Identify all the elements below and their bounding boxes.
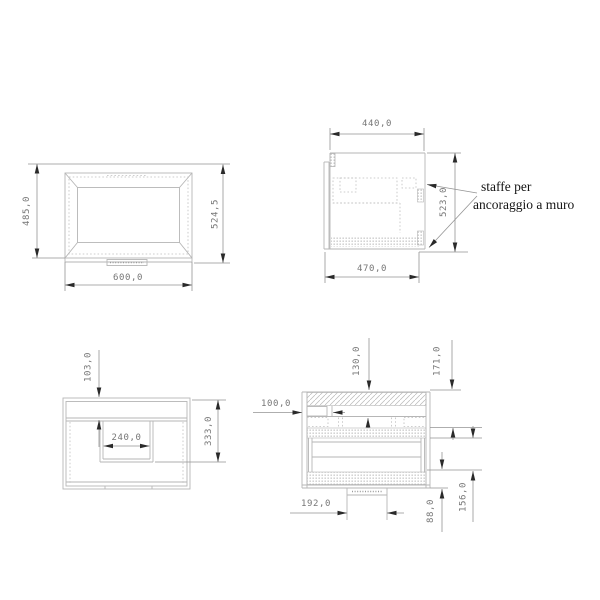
leader-line-bottom: [429, 196, 477, 248]
bottom-shelf-hatch: [307, 472, 426, 485]
dim-side-height: 523,0: [439, 187, 449, 217]
dim-bottom-height: 156,0: [459, 482, 469, 512]
dim-height-to-recess: 333,0: [204, 416, 214, 446]
cabinet-front-geometry: [63, 398, 190, 489]
basin-front-view: 485,0 524,5 600,0: [22, 164, 230, 291]
note-staffe-line1: staffe per: [481, 179, 532, 194]
side-geometry: [324, 153, 425, 249]
side-view: 440,0 523,0 470,0 staffe per ancoraggio …: [324, 119, 574, 283]
countertop-hatch: [307, 393, 426, 406]
cabinet-section-view: 130,0 171,0 100,0 156,0 88,0 192,0: [253, 338, 482, 532]
cabinet-front-view: 103,0 240,0 333,0: [63, 350, 226, 489]
dim-recess-width: 240,0: [111, 433, 141, 443]
leader-line-top: [427, 185, 477, 194]
dim-height-overall: 524,5: [211, 199, 221, 229]
dim-bracket-inset: 100,0: [261, 399, 291, 409]
wall-bracket-top: [418, 189, 424, 202]
technical-drawing-page: 485,0 524,5 600,0: [0, 0, 600, 600]
dim-trap-width: 192,0: [301, 499, 331, 509]
dim-top-depth: 130,0: [352, 346, 362, 376]
basin-front-dimensions: 485,0 524,5 600,0: [22, 164, 230, 291]
dim-width: 600,0: [113, 273, 143, 283]
cad-drawing: 485,0 524,5 600,0: [0, 0, 600, 600]
dim-plinth-height: 88,0: [426, 499, 436, 523]
dim-top-total: 171,0: [433, 346, 443, 376]
dim-top-band: 103,0: [84, 352, 94, 382]
dim-height-left: 485,0: [22, 196, 32, 226]
bracket-section-left: [307, 407, 327, 417]
bracket-hidden-outline: [402, 178, 416, 188]
side-dimensions: 440,0 523,0 470,0 staffe per ancoraggio …: [325, 119, 574, 283]
basin-front-geometry: [28, 164, 230, 266]
cabinet-front-dimensions: 103,0 240,0 333,0: [84, 350, 227, 462]
dim-depth-top: 440,0: [362, 119, 392, 129]
bottom-panel-hatch: [331, 236, 419, 247]
dim-depth-bottom: 470,0: [357, 264, 387, 274]
note-staffe-line2: ancoraggio a muro: [473, 197, 574, 212]
mid-shelf-hatch: [307, 428, 426, 438]
